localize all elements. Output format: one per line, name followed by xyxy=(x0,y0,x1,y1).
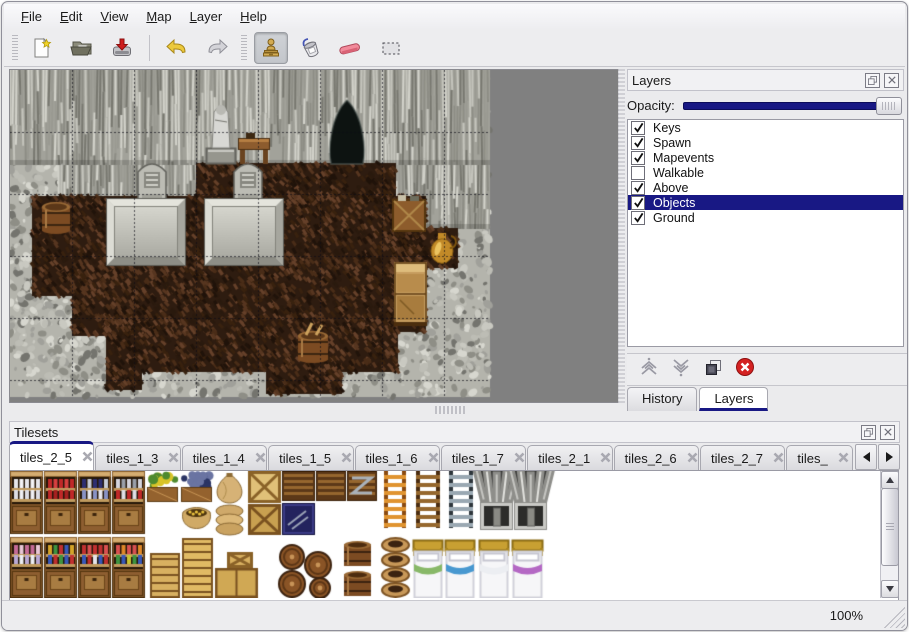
stamp-tool-button[interactable] xyxy=(254,32,288,64)
chevrons-down-icon xyxy=(670,356,692,383)
stamp-icon xyxy=(259,36,283,60)
chevrons-up-icon xyxy=(638,356,660,383)
map-canvas[interactable] xyxy=(10,70,618,402)
delete-layer-button[interactable] xyxy=(731,358,759,382)
close-tilesets-icon[interactable] xyxy=(880,425,895,440)
horizontal-splitter[interactable] xyxy=(435,406,465,414)
tileset-tab-label: tiles_ xyxy=(797,451,827,466)
menu-bar: FileEditViewMapLayerHelp xyxy=(4,4,905,29)
layers-history-tabs: HistoryLayers xyxy=(627,387,770,411)
layer-name: Above xyxy=(653,181,688,195)
save-icon xyxy=(110,36,134,60)
tileset-tab-tiles[interactable]: tiles_ xyxy=(786,445,853,470)
layers-panel-title: Layers xyxy=(632,73,861,88)
scrollbar-thumb[interactable] xyxy=(881,488,899,566)
redo-icon xyxy=(204,36,230,60)
tab-scroll-right-icon[interactable] xyxy=(878,444,900,470)
tileset-tab-tiles_2_6[interactable]: tiles_2_6 xyxy=(614,445,699,470)
layer-visible-checkbox[interactable] xyxy=(631,166,645,180)
tab-close-icon[interactable] xyxy=(514,451,525,466)
layer-visible-checkbox[interactable] xyxy=(631,136,645,150)
tileset-tab-label: tiles_1_3 xyxy=(106,451,158,466)
close-panel-icon[interactable] xyxy=(884,73,899,88)
tab-history[interactable]: History xyxy=(627,387,697,411)
menu-help[interactable]: Help xyxy=(231,6,276,27)
tileset-tab-tiles_1_3[interactable]: tiles_1_3 xyxy=(95,445,180,470)
tab-close-icon[interactable] xyxy=(428,451,439,466)
layer-row-walkable[interactable]: Walkable xyxy=(628,165,903,180)
tileset-tab-bar: tiles_2_5tiles_1_3tiles_1_4tiles_1_5tile… xyxy=(9,443,900,470)
raise-layer-button[interactable] xyxy=(635,358,663,382)
tileset-tab-tiles_2_7[interactable]: tiles_2_7 xyxy=(700,445,785,470)
tileset-tab-tiles_1_4[interactable]: tiles_1_4 xyxy=(182,445,267,470)
layer-name: Mapevents xyxy=(653,151,714,165)
tileset-tab-label: tiles_1_6 xyxy=(366,451,418,466)
undo-button[interactable] xyxy=(160,32,194,64)
toolbar-grip xyxy=(12,35,18,61)
vertical-splitter[interactable] xyxy=(618,69,625,403)
tab-close-icon[interactable] xyxy=(687,451,698,466)
selection-icon xyxy=(378,36,404,60)
tab-close-icon[interactable] xyxy=(838,451,849,466)
tilesets-panel-title: Tilesets xyxy=(14,425,857,440)
tab-scroll-arrows xyxy=(854,444,900,470)
menu-file[interactable]: File xyxy=(12,6,51,27)
tileset-scrollbar[interactable] xyxy=(880,471,898,598)
layers-panel-header: Layers xyxy=(627,69,904,91)
opacity-label: Opacity: xyxy=(627,98,675,113)
tileset-tab-tiles_2_5[interactable]: tiles_2_5 xyxy=(9,441,94,470)
tileset-tab-label: tiles_2_5 xyxy=(20,450,72,465)
opacity-row: Opacity: xyxy=(627,95,904,115)
layer-visible-checkbox[interactable] xyxy=(631,181,645,195)
map-viewport[interactable] xyxy=(9,69,619,403)
tileset-tab-label: tiles_1_4 xyxy=(193,451,245,466)
tileset-tab-tiles_1_6[interactable]: tiles_1_6 xyxy=(355,445,440,470)
tab-close-icon[interactable] xyxy=(773,451,784,466)
menu-view[interactable]: View xyxy=(91,6,137,27)
layer-row-keys[interactable]: Keys xyxy=(628,120,903,135)
app-window: FileEditViewMapLayerHelp Layers Opacity:… xyxy=(1,1,908,631)
resize-grip[interactable] xyxy=(881,604,905,628)
layer-name: Walkable xyxy=(653,166,704,180)
zoom-level: 100% xyxy=(830,608,863,623)
tilesets-panel-header: Tilesets xyxy=(9,421,900,443)
float-panel-icon[interactable] xyxy=(865,73,880,88)
delete-icon xyxy=(734,356,756,383)
layer-row-objects[interactable]: Objects xyxy=(628,195,903,210)
fill-bucket-icon xyxy=(298,36,324,60)
save-button[interactable] xyxy=(105,32,139,64)
tileset-tab-label: tiles_2_6 xyxy=(625,451,677,466)
status-bar: 100% xyxy=(2,600,907,630)
tileset-tab-label: tiles_1_5 xyxy=(279,451,331,466)
menu-layer[interactable]: Layer xyxy=(181,6,232,27)
lower-layer-button[interactable] xyxy=(667,358,695,382)
layer-list: KeysSpawnMapeventsWalkableAboveObjectsGr… xyxy=(627,119,904,347)
layer-row-mapevents[interactable]: Mapevents xyxy=(628,150,903,165)
tileset-tab-tiles_1_5[interactable]: tiles_1_5 xyxy=(268,445,353,470)
menu-edit[interactable]: Edit xyxy=(51,6,91,27)
scroll-up-icon[interactable] xyxy=(881,471,899,489)
tileset-tab-label: tiles_2_7 xyxy=(711,451,763,466)
new-file-button[interactable] xyxy=(25,32,59,64)
redo-button[interactable] xyxy=(200,32,234,64)
tab-scroll-left-icon[interactable] xyxy=(855,444,877,470)
tileset-tab-tiles_2_1[interactable]: tiles_2_1 xyxy=(527,445,612,470)
layer-buttons-bar xyxy=(627,353,908,386)
tileset-content[interactable] xyxy=(9,470,899,601)
layers-panel: Layers Opacity: KeysSpawnMapeventsWalkab… xyxy=(627,69,904,414)
toolbar xyxy=(4,29,905,67)
toolbar-separator xyxy=(149,35,150,61)
tab-close-icon[interactable] xyxy=(341,451,352,466)
layer-row-spawn[interactable]: Spawn xyxy=(628,135,903,150)
open-button[interactable] xyxy=(65,32,99,64)
tab-layers[interactable]: Layers xyxy=(699,387,768,411)
tab-close-icon[interactable] xyxy=(168,451,179,466)
layer-visible-checkbox[interactable] xyxy=(631,196,645,210)
fill-tool-button[interactable] xyxy=(294,32,328,64)
tileset-canvas[interactable] xyxy=(10,471,863,598)
float-tilesets-icon[interactable] xyxy=(861,425,876,440)
opacity-slider[interactable] xyxy=(683,96,902,114)
duplicate-layer-button[interactable] xyxy=(699,358,727,382)
layer-name: Keys xyxy=(653,121,681,135)
open-folder-icon xyxy=(69,36,95,60)
tileset-tab-label: tiles_2_1 xyxy=(538,451,590,466)
layer-row-ground[interactable]: Ground xyxy=(628,210,903,225)
layer-name: Spawn xyxy=(653,136,691,150)
select-tool-button[interactable] xyxy=(374,32,408,64)
scroll-down-icon[interactable] xyxy=(881,580,899,598)
layer-visible-checkbox[interactable] xyxy=(631,121,645,135)
layer-row-above[interactable]: Above xyxy=(628,180,903,195)
menu-map[interactable]: Map xyxy=(137,6,180,27)
eraser-tool-button[interactable] xyxy=(334,32,368,64)
tab-close-icon[interactable] xyxy=(600,451,611,466)
tileset-tab-label: tiles_1_7 xyxy=(452,451,504,466)
opacity-slider-track[interactable] xyxy=(683,102,902,110)
toolbar-grip xyxy=(241,35,247,61)
layer-visible-checkbox[interactable] xyxy=(631,151,645,165)
layer-name: Ground xyxy=(653,211,695,225)
layer-name: Objects xyxy=(653,196,695,210)
tileset-tab-tiles_1_7[interactable]: tiles_1_7 xyxy=(441,445,526,470)
undo-icon xyxy=(164,36,190,60)
tab-close-icon[interactable] xyxy=(82,450,93,465)
layer-visible-checkbox[interactable] xyxy=(631,211,645,225)
new-file-icon xyxy=(30,36,54,60)
eraser-icon xyxy=(338,36,364,60)
tab-close-icon[interactable] xyxy=(255,451,266,466)
opacity-slider-handle[interactable] xyxy=(876,97,902,115)
duplicate-icon xyxy=(702,356,724,383)
